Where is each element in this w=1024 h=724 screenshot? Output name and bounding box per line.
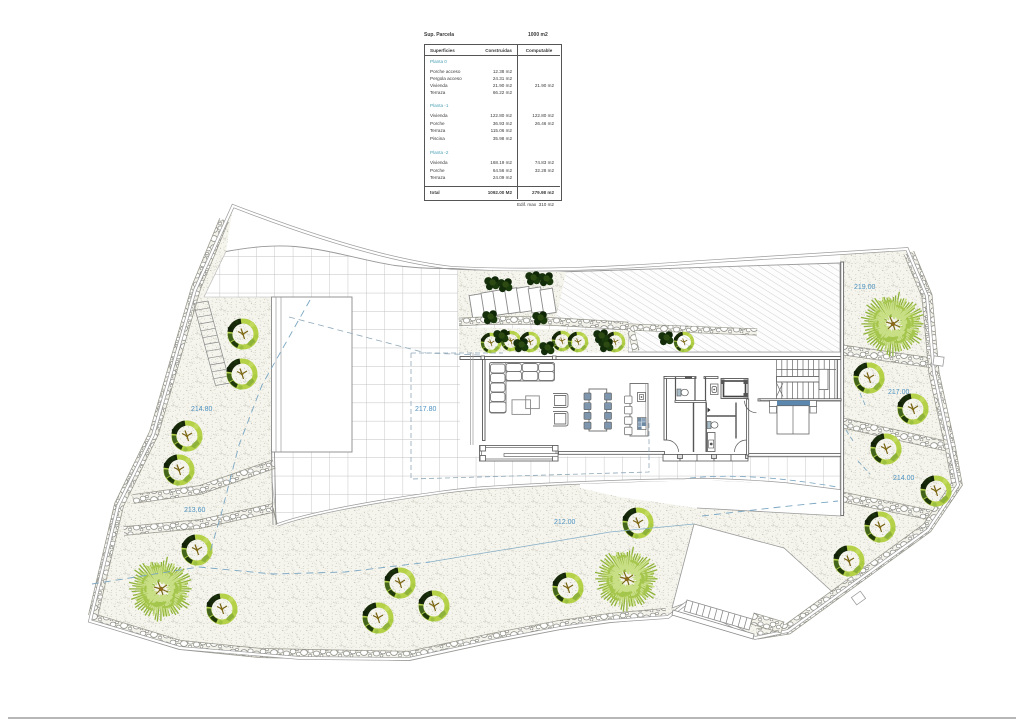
svg-text:212.00: 212.00 bbox=[554, 519, 576, 526]
svg-text:214.00: 214.00 bbox=[893, 475, 915, 482]
svg-text:214.80: 214.80 bbox=[191, 406, 213, 413]
svg-text:213.60: 213.60 bbox=[184, 507, 206, 514]
svg-text:217.80: 217.80 bbox=[415, 406, 437, 413]
svg-text:217.00: 217.00 bbox=[888, 389, 910, 396]
svg-text:219.00: 219.00 bbox=[854, 284, 876, 291]
